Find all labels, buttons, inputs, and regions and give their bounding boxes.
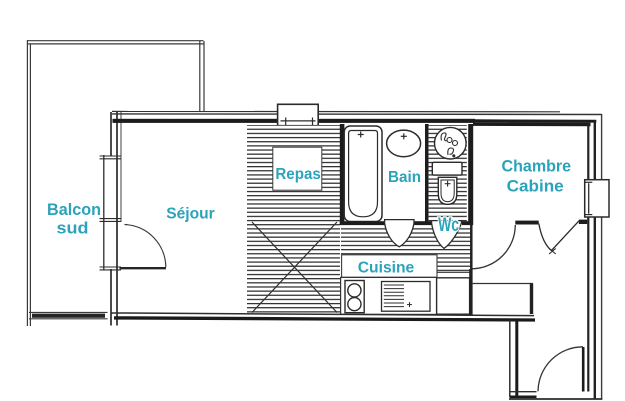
svg-text:Cabine: Cabine: [507, 176, 564, 195]
svg-text:sud: sud: [57, 220, 89, 238]
svg-text:Repas: Repas: [275, 166, 321, 183]
svg-text:Séjour: Séjour: [166, 206, 215, 223]
svg-text:Balcon: Balcon: [47, 201, 101, 219]
svg-text:Bain: Bain: [388, 169, 421, 186]
svg-text:Wc: Wc: [438, 215, 459, 236]
svg-text:Cuisine: Cuisine: [358, 260, 415, 277]
svg-text:Chambre: Chambre: [502, 157, 572, 176]
